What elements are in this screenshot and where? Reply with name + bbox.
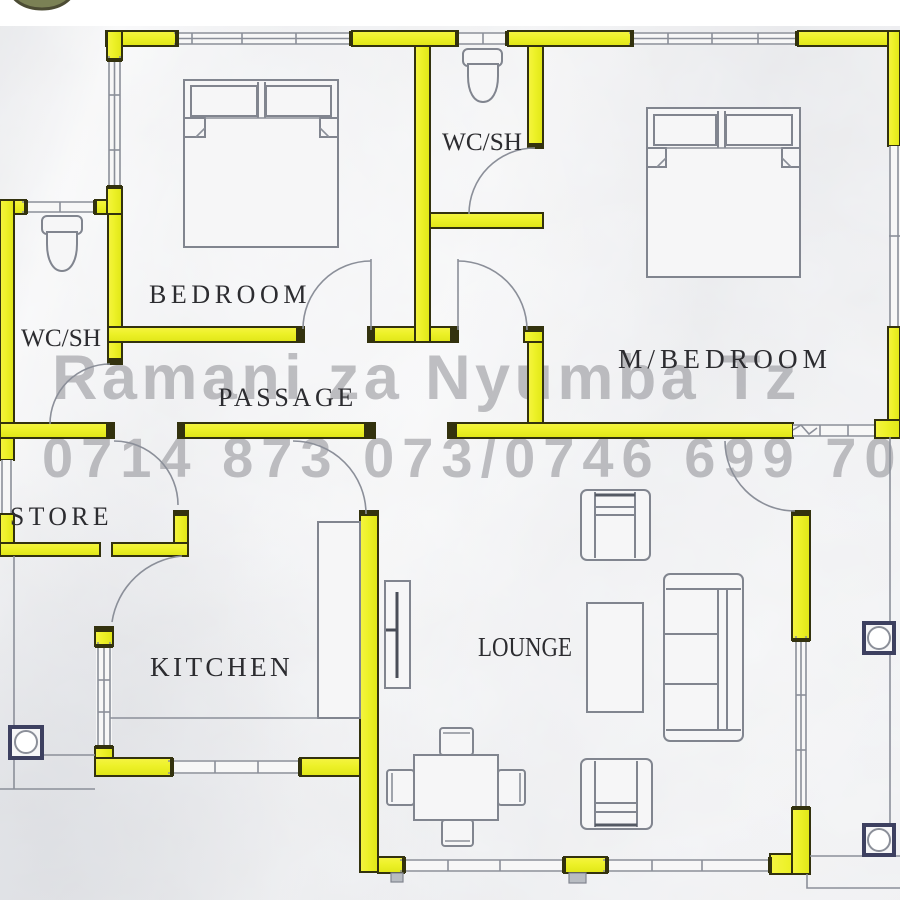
svg-text:M/BEDROOM: M/BEDROOM: [618, 344, 832, 374]
svg-text:WC/SH: WC/SH: [21, 325, 101, 352]
svg-text:PASSAGE: PASSAGE: [218, 383, 357, 412]
svg-text:LOUNGE: LOUNGE: [478, 632, 572, 662]
svg-text:STORE: STORE: [10, 502, 113, 531]
svg-text:WC/SH: WC/SH: [442, 129, 522, 156]
svg-text:BEDROOM: BEDROOM: [149, 280, 311, 309]
svg-text:KITCHEN: KITCHEN: [150, 652, 293, 682]
